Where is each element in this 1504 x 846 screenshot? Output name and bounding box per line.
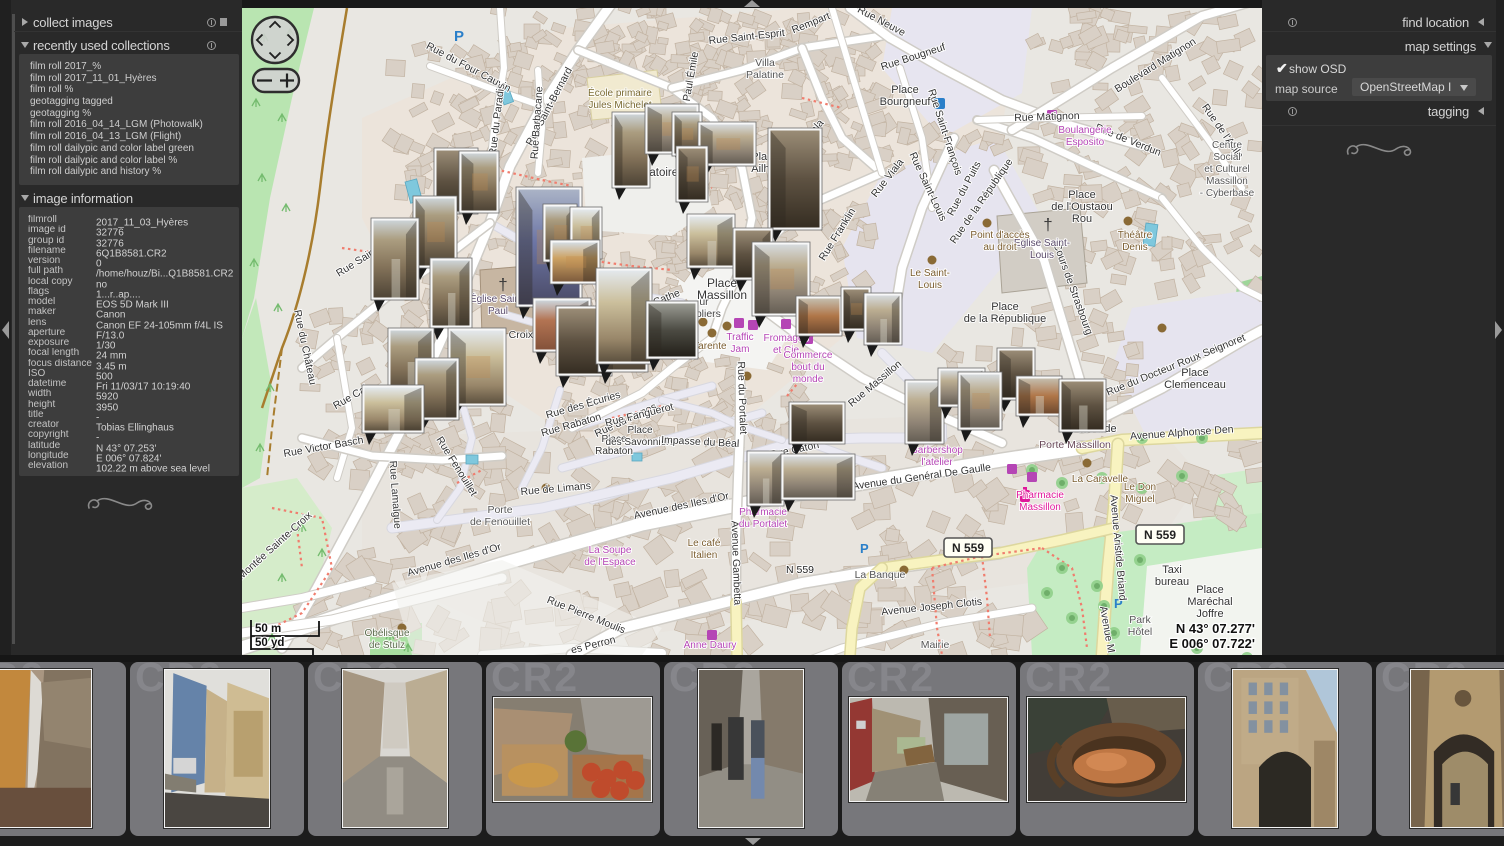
svg-text:Bourgneuf: Bourgneuf [880,96,932,108]
svg-text:†: † [1043,215,1052,234]
svg-text:monde: monde [793,374,824,385]
svg-text:Jam: Jam [731,344,750,355]
svg-text:N 559: N 559 [952,541,984,555]
svg-text:Point d'accès: Point d'accès [970,230,1029,241]
svg-text:La Banque: La Banque [855,569,906,581]
svg-text:l'atelier: l'atelier [921,457,953,468]
svg-text:Italien: Italien [691,550,718,561]
svg-text:bout du: bout du [791,362,824,373]
svg-text:- Cyberbase: - Cyberbase [1200,188,1255,199]
svg-text:Taxi: Taxi [1162,564,1182,576]
svg-text:Social: Social [1213,152,1240,163]
svg-text:La Soupe: La Soupe [589,545,632,556]
svg-text:Esposito: Esposito [1066,137,1105,148]
svg-text:École primaire: École primaire [588,86,652,99]
svg-text:et Culturel: et Culturel [1204,164,1250,175]
svg-text:N 559: N 559 [786,564,814,576]
svg-text:Mairie: Mairie [921,639,950,651]
svg-text:Place: Place [891,84,919,96]
svg-text:Massillon: Massillon [1206,176,1248,187]
svg-text:Pharmacie: Pharmacie [1016,490,1064,501]
svg-text:de la République: de la République [964,313,1047,325]
svg-text:Commerce: Commerce [784,350,833,361]
svg-text:Rue du Portalet: Rue du Portalet [735,361,750,434]
svg-text:†: † [498,275,507,294]
svg-text:Rou: Rou [1072,213,1092,225]
svg-text:Porte: Porte [487,504,512,516]
svg-text:Park: Park [1129,614,1151,626]
svg-text:ur: ur [699,296,709,308]
svg-text:Obélisque: Obélisque [364,628,409,639]
svg-text:Miguel: Miguel [1125,494,1154,505]
svg-text:du Portalet: du Portalet [739,519,788,530]
svg-text:bureau: bureau [1155,576,1189,588]
svg-text:Traffic: Traffic [726,332,753,343]
svg-text:P: P [454,28,464,45]
svg-text:50 m: 50 m [255,623,281,635]
svg-text:Clemenceau: Clemenceau [1164,379,1226,391]
svg-text:La Caravelle: La Caravelle [1072,474,1129,485]
svg-text:Centre: Centre [1212,140,1242,151]
svg-text:P: P [860,541,869,556]
svg-text:Louis: Louis [1030,250,1054,261]
svg-text:Place: Place [1181,367,1209,379]
svg-text:Maréchal: Maréchal [1187,596,1232,608]
svg-text:Denis: Denis [1122,242,1148,253]
svg-text:N 559: N 559 [1144,528,1176,542]
svg-text:Boulangerie: Boulangerie [1058,125,1112,136]
svg-text:Paul: Paul [488,306,508,317]
svg-text:Louis: Louis [918,280,942,291]
svg-text:Place: Place [991,301,1019,313]
svg-text:au droit: au droit [983,242,1017,253]
svg-text:Théâtre: Théâtre [1118,230,1153,241]
svg-text:de l'Espace: de l'Espace [584,557,636,568]
svg-text:E 006° 07.722': E 006° 07.722' [1169,636,1255,651]
svg-text:Le café: Le café [688,538,721,549]
svg-text:de Fenouillet: de Fenouillet [470,516,530,528]
svg-text:Massillon: Massillon [1019,502,1061,513]
svg-text:Anne Daury: Anne Daury [684,640,737,651]
svg-text:Place: Place [1068,189,1096,201]
svg-text:Le Don: Le Don [1124,482,1156,493]
svg-text:50 yd: 50 yd [255,637,284,649]
svg-text:Joffre: Joffre [1196,608,1223,620]
svg-text:Le Saint-: Le Saint- [910,268,950,279]
svg-text:Palatine: Palatine [746,69,784,81]
svg-text:Pharmacie: Pharmacie [739,507,787,518]
svg-text:de Stulz: de Stulz [369,640,405,651]
svg-text:Barbershop: Barbershop [911,445,963,456]
svg-text:de l'Oustaou: de l'Oustaou [1051,201,1112,213]
svg-text:Place: Place [1196,584,1224,596]
svg-text:Villa: Villa [755,57,775,69]
svg-text:N 43° 07.277': N 43° 07.277' [1176,621,1255,636]
svg-text:Place: Place [627,425,652,436]
svg-text:Porte Massillon: Porte Massillon [1039,439,1111,451]
svg-text:Rue Matignon: Rue Matignon [1014,110,1080,124]
svg-text:Hôtel: Hôtel [1128,626,1153,638]
svg-text:Jules Michelet: Jules Michelet [588,100,652,111]
